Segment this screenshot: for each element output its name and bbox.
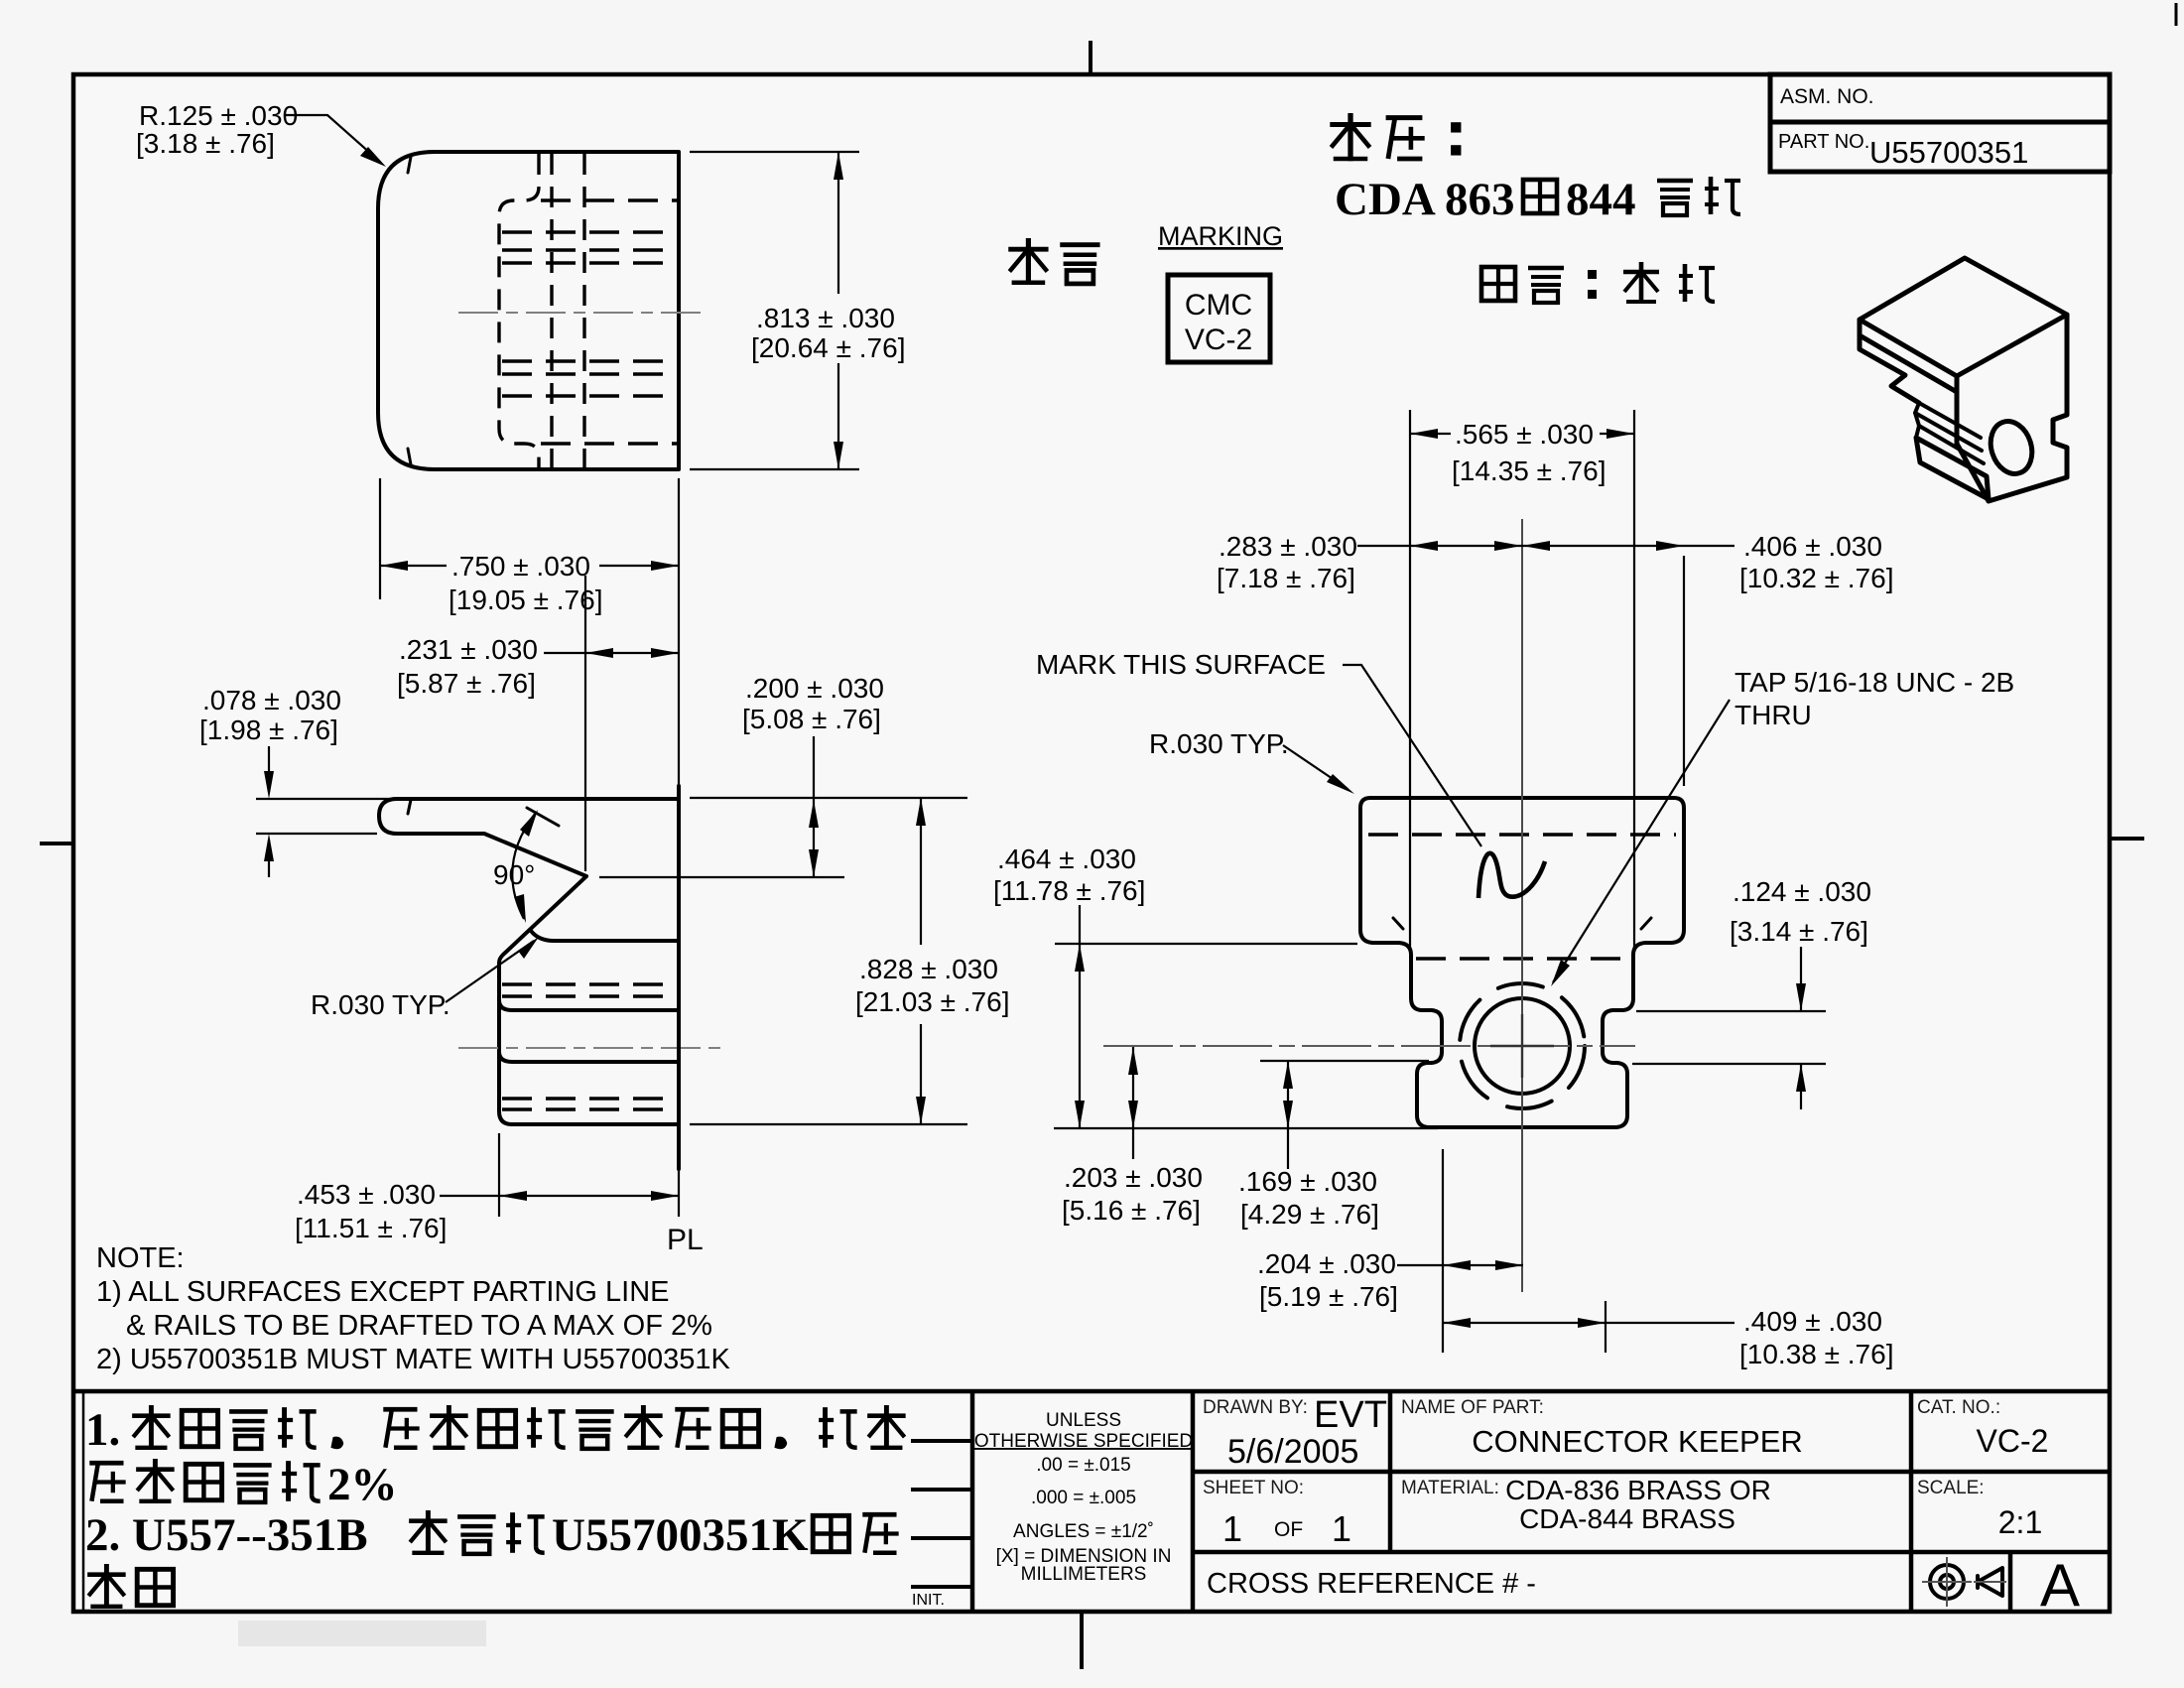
svg-text:[20.64 ± .76]: [20.64 ± .76]	[751, 332, 905, 363]
svg-text:[21.03 ± .76]: [21.03 ± .76]	[855, 986, 1009, 1017]
svg-text:.169 ± .030: .169 ± .030	[1238, 1166, 1377, 1197]
svg-text:1: 1	[1332, 1508, 1351, 1549]
svg-text:CAT. NO.:: CAT. NO.:	[1917, 1397, 2000, 1418]
svg-text:.406 ± .030: .406 ± .030	[1743, 531, 1882, 562]
svg-text:.204 ± .030: .204 ± .030	[1257, 1248, 1396, 1279]
svg-text:& RAILS TO BE DRAFTED TO A MAX: & RAILS TO BE DRAFTED TO A MAX OF 2%	[126, 1310, 712, 1342]
svg-text:MILLIMETERS: MILLIMETERS	[1021, 1564, 1147, 1585]
svg-text:[19.05 ± .76]: [19.05 ± .76]	[449, 584, 602, 615]
svg-text:.828 ± .030: .828 ± .030	[859, 954, 998, 984]
svg-text:OTHERWISE SPECIFIED: OTHERWISE SPECIFIED	[974, 1431, 1193, 1452]
svg-text:CDA 863: CDA 863	[1335, 174, 1514, 225]
svg-text:[5.19 ± .76]: [5.19 ± .76]	[1259, 1281, 1398, 1312]
svg-text:[10.38 ± .76]: [10.38 ± .76]	[1739, 1339, 1893, 1369]
svg-text:EVT: EVT	[1314, 1394, 1387, 1436]
svg-text:U55700351: U55700351	[1869, 135, 2028, 170]
svg-text:NOTE:: NOTE:	[96, 1242, 185, 1274]
svg-text:SCALE:: SCALE:	[1917, 1478, 1985, 1498]
svg-text:5/6/2005: 5/6/2005	[1227, 1433, 1358, 1471]
svg-text:90°: 90°	[493, 859, 535, 890]
svg-text:.078 ± .030: .078 ± .030	[202, 685, 341, 715]
svg-text:.813 ± .030: .813 ± .030	[756, 303, 895, 333]
svg-text:.464 ± .030: .464 ± .030	[997, 844, 1136, 874]
svg-text:.565 ± .030: .565 ± .030	[1455, 419, 1594, 450]
svg-text:2. U557--351B: 2. U557--351B	[85, 1509, 368, 1561]
svg-text:[14.35 ± .76]: [14.35 ± .76]	[1452, 455, 1606, 486]
svg-text:[3.14 ± .76]: [3.14 ± .76]	[1730, 916, 1868, 947]
svg-text:2%: 2%	[327, 1459, 398, 1510]
svg-text:CMC: CMC	[1185, 289, 1252, 322]
svg-text:INIT.: INIT.	[912, 1592, 945, 1609]
svg-text:[5.87 ± .76]: [5.87 ± .76]	[397, 668, 536, 699]
svg-text:R.030 TYP.: R.030 TYP.	[1149, 728, 1289, 759]
svg-text:MARKING: MARKING	[1158, 221, 1283, 251]
svg-text:[10.32 ± .76]: [10.32 ± .76]	[1739, 563, 1893, 593]
svg-text:TAP 5/16-18 UNC - 2B: TAP 5/16-18 UNC - 2B	[1734, 667, 2014, 698]
svg-text:.00 = ±.015: .00 = ±.015	[1036, 1455, 1130, 1476]
svg-text:VC-2: VC-2	[1185, 324, 1252, 356]
svg-text:.750 ± .030: .750 ± .030	[451, 551, 590, 582]
svg-text:.203 ± .030: .203 ± .030	[1064, 1162, 1203, 1193]
svg-text:.124 ± .030: .124 ± .030	[1733, 876, 1871, 907]
svg-text:.453 ± .030: .453 ± .030	[297, 1179, 436, 1210]
svg-text:2) U55700351B MUST MATE WITH U: 2) U55700351B MUST MATE WITH U55700351K	[96, 1344, 730, 1375]
svg-text:CDA-844 BRASS: CDA-844 BRASS	[1519, 1503, 1735, 1534]
svg-text:NAME OF PART:: NAME OF PART:	[1401, 1397, 1544, 1418]
svg-text:SHEET NO:: SHEET NO:	[1203, 1478, 1304, 1498]
svg-text:[3.18 ± .76]: [3.18 ± .76]	[136, 128, 275, 159]
svg-text:PART NO.: PART NO.	[1778, 131, 1869, 153]
svg-text:THRU: THRU	[1734, 700, 1812, 730]
svg-text:ANGLES = ±1/2˚: ANGLES = ±1/2˚	[1013, 1521, 1154, 1542]
svg-text:[5.08 ± .76]: [5.08 ± .76]	[742, 704, 881, 734]
svg-text:[7.18 ± .76]: [7.18 ± .76]	[1217, 563, 1355, 593]
svg-text:.409 ± .030: .409 ± .030	[1743, 1306, 1882, 1337]
svg-text:[11.78 ± .76]: [11.78 ± .76]	[993, 875, 1145, 906]
svg-text:VC-2: VC-2	[1977, 1423, 2049, 1459]
svg-text:PL: PL	[667, 1224, 704, 1256]
svg-text:CONNECTOR KEEPER: CONNECTOR KEEPER	[1472, 1424, 1803, 1459]
svg-text:DRAWN BY:: DRAWN BY:	[1203, 1397, 1308, 1418]
svg-text:R.125 ± .030: R.125 ± .030	[139, 100, 298, 131]
svg-text:1) ALL SURFACES EXCEPT PARTING: 1) ALL SURFACES EXCEPT PARTING LINE	[96, 1276, 670, 1308]
svg-text:.200 ± .030: .200 ± .030	[745, 673, 884, 704]
svg-text:.231 ± .030: .231 ± .030	[399, 634, 538, 665]
svg-text:[4.29 ± .76]: [4.29 ± .76]	[1240, 1199, 1379, 1230]
svg-text:MATERIAL:: MATERIAL:	[1401, 1478, 1499, 1498]
svg-text:.000 = ±.005: .000 = ±.005	[1031, 1488, 1136, 1508]
svg-text:A: A	[2040, 1552, 2080, 1619]
svg-text:[1.98 ± .76]: [1.98 ± .76]	[199, 714, 338, 745]
svg-text:844: 844	[1566, 174, 1636, 225]
svg-text:[5.16 ± .76]: [5.16 ± .76]	[1062, 1195, 1201, 1226]
svg-text:OF: OF	[1274, 1518, 1303, 1541]
svg-text:U55700351K: U55700351K	[552, 1509, 809, 1561]
svg-text:.283 ± .030: .283 ± .030	[1219, 531, 1357, 562]
svg-text:2:1: 2:1	[1998, 1504, 2042, 1540]
svg-text:MARK THIS SURFACE: MARK THIS SURFACE	[1036, 649, 1326, 680]
svg-text:UNLESS: UNLESS	[1046, 1410, 1121, 1431]
svg-text:ASM. NO.: ASM. NO.	[1780, 85, 1874, 108]
svg-text:CROSS REFERENCE # -: CROSS REFERENCE # -	[1207, 1568, 1536, 1600]
svg-text:[11.51 ± .76]: [11.51 ± .76]	[295, 1213, 447, 1243]
svg-text:R.030 TYP.: R.030 TYP.	[311, 989, 450, 1020]
svg-text:1: 1	[1222, 1508, 1242, 1549]
svg-text:1.: 1.	[85, 1404, 120, 1456]
svg-text:CDA-836 BRASS OR: CDA-836 BRASS OR	[1505, 1475, 1771, 1505]
